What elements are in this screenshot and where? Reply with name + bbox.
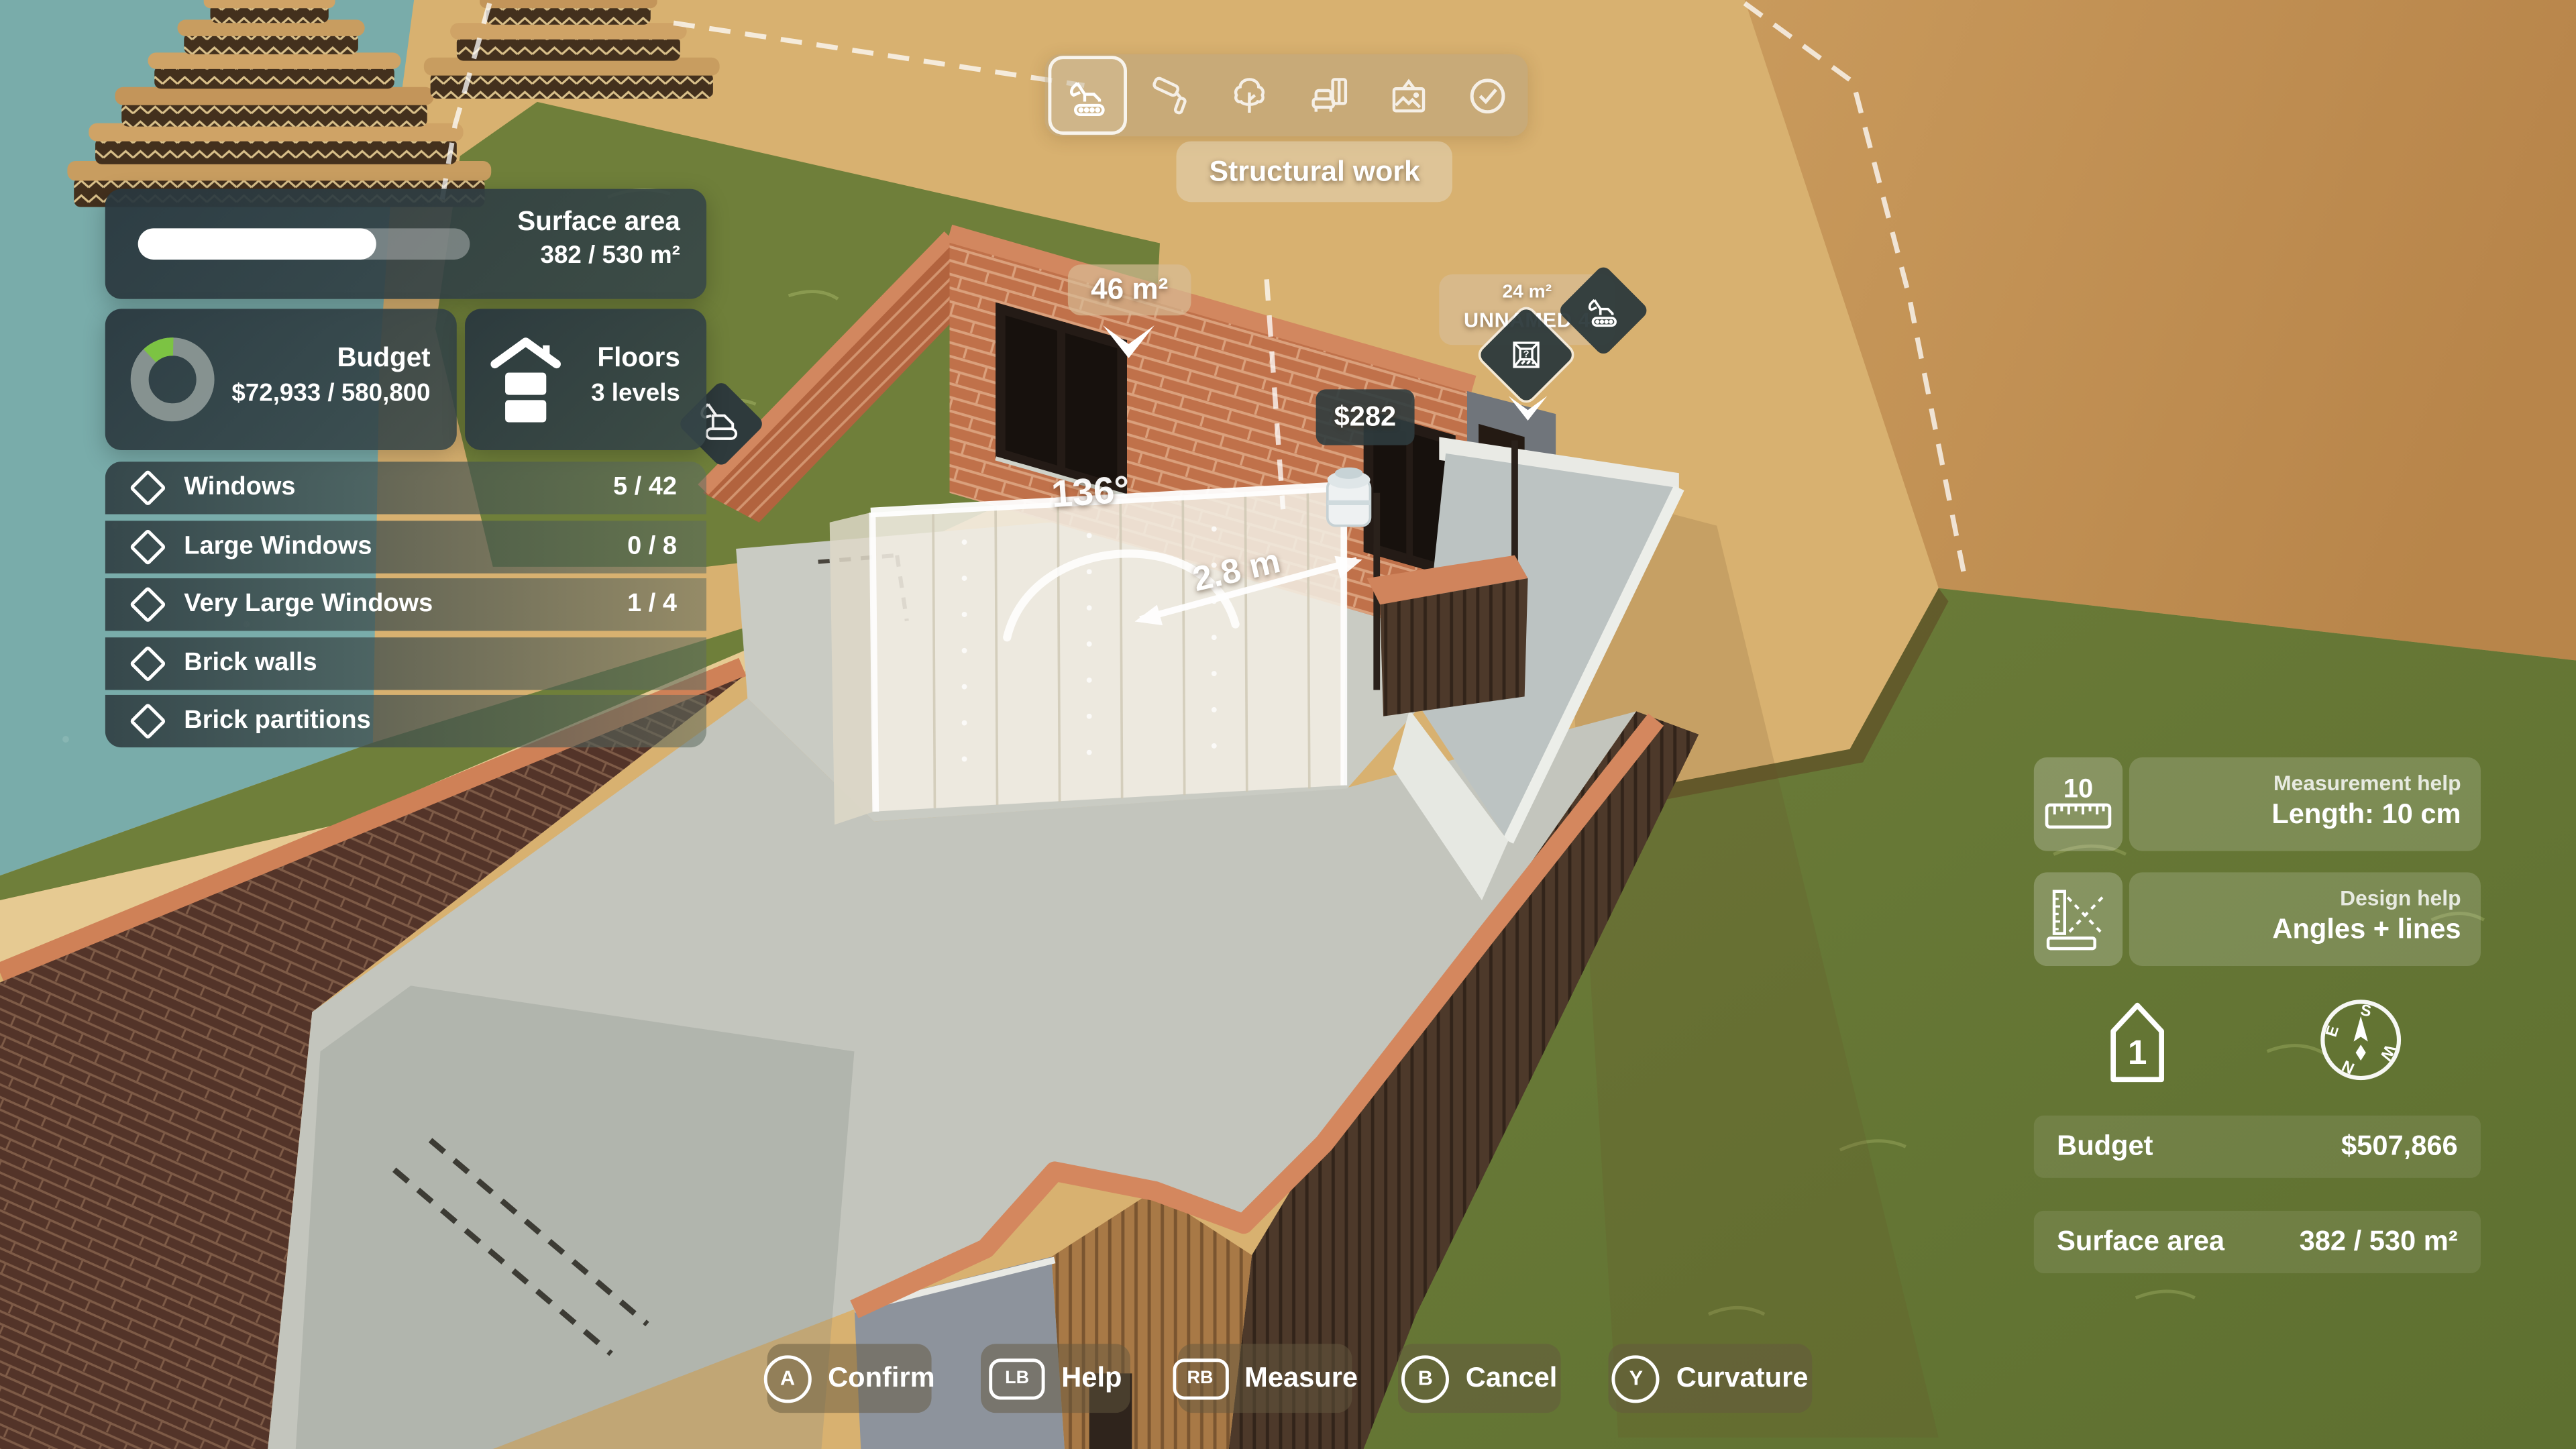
gamepad-rb-icon: RB	[1172, 1358, 1228, 1399]
chevron-down-icon	[1097, 325, 1160, 358]
angle-measurement: 136°	[1050, 467, 1131, 517]
diamond-icon	[129, 702, 166, 739]
requirement-brick-partitions: Brick partitions	[105, 695, 706, 747]
surface-stat-row: Surface area 382 / 530 m²	[2034, 1211, 2481, 1273]
requirement-very-large-windows: Very Large Windows 1 / 4	[105, 578, 706, 631]
floors-panel-value: 3 levels	[591, 380, 680, 408]
gamepad-y-icon: Y	[1612, 1354, 1660, 1402]
tab-landscaping[interactable]	[1214, 59, 1286, 131]
ruler-icon: 10	[2041, 769, 2116, 839]
measurement-help-tile: 10	[2034, 757, 2123, 851]
ruler-badge: 10	[2063, 773, 2093, 802]
gamepad-a-icon: A	[764, 1354, 812, 1402]
requirement-count: 0 / 8	[627, 531, 677, 561]
gamepad-lb-icon: LB	[989, 1358, 1044, 1399]
excavator-icon	[1585, 292, 1621, 329]
check-circle-icon	[1466, 73, 1510, 117]
budget-panel-title: Budget	[337, 343, 430, 375]
tab-furnishing[interactable]	[1293, 59, 1366, 131]
wall-preview[interactable]	[830, 486, 1347, 824]
floors-panel: Floors 3 levels	[465, 309, 706, 450]
measurement-help-panel: Measurement help Length: 10 cm	[2129, 757, 2481, 851]
design-help-panel: Design help Angles + lines	[2129, 872, 2481, 966]
room-area-tag: 46 m²	[1068, 264, 1191, 315]
set-square-icon	[2042, 881, 2114, 957]
surface-area-panel: Surface area 382 / 530 m²	[105, 189, 706, 299]
surface-stat-label: Surface area	[2057, 1226, 2224, 1258]
diamond-icon	[129, 586, 166, 623]
budget-stat-row: Budget $507,866	[2034, 1116, 2481, 1178]
measurement-help-title: Measurement help	[2129, 771, 2461, 796]
surface-panel-value: 382 / 530 m²	[541, 241, 680, 270]
floors-icon	[484, 329, 566, 431]
sofa-icon	[1307, 73, 1352, 117]
diamond-icon	[129, 528, 166, 565]
room-box-icon: ?	[1508, 337, 1544, 373]
active-tool-label: Structural work	[1176, 142, 1452, 203]
tab-structural-work[interactable]	[1049, 56, 1128, 135]
requirement-count: 5 / 42	[613, 473, 677, 502]
requirement-label: Brick partitions	[184, 706, 677, 736]
build-phase-toolbar	[1045, 54, 1528, 136]
budget-panel-value: $72,933 / 580,800	[231, 380, 430, 408]
floor-level-indicator[interactable]: 1	[2103, 996, 2172, 1087]
design-help-value: Angles + lines	[2129, 914, 2461, 947]
curvature-label: Curvature	[1676, 1362, 1809, 1395]
requirement-count: 1 / 4	[627, 590, 677, 619]
budget-stat-value: $507,866	[2341, 1130, 2458, 1163]
confirm-button[interactable]: A Confirm	[767, 1344, 932, 1413]
tree-icon	[1228, 73, 1272, 117]
requirement-label: Large Windows	[184, 531, 627, 561]
wall-drag-handle[interactable]	[1328, 468, 1371, 526]
budget-panel: Budget $72,933 / 580,800	[105, 309, 457, 450]
help-button[interactable]: LB Help	[981, 1344, 1130, 1413]
budget-donut-chart	[125, 332, 220, 427]
requirements-list: Windows 5 / 42 Large Windows 0 / 8 Very …	[105, 462, 706, 747]
surface-stat-value: 382 / 530 m²	[2300, 1226, 2458, 1258]
paint-roller-icon	[1148, 73, 1193, 117]
floor-level-number: 1	[2128, 1032, 2147, 1071]
measurement-help-value: Length: 10 cm	[2129, 798, 2461, 831]
excavator-icon	[1066, 73, 1110, 117]
compass-icon: S W N E	[2313, 992, 2408, 1087]
tab-decoration[interactable]	[1373, 59, 1445, 131]
gamepad-b-icon: B	[1401, 1354, 1449, 1402]
requirement-label: Very Large Windows	[184, 590, 627, 619]
chevron-down-icon	[1507, 396, 1550, 421]
surface-progress-bar	[138, 228, 470, 260]
compass-e: E	[2323, 1024, 2343, 1039]
picture-frame-icon	[1387, 73, 1431, 117]
requirement-brick-walls: Brick walls	[105, 637, 706, 689]
requirement-windows: Windows 5 / 42	[105, 462, 706, 514]
requirement-large-windows: Large Windows 0 / 8	[105, 520, 706, 572]
confirm-label: Confirm	[828, 1362, 935, 1395]
surface-panel-title: Surface area	[517, 207, 680, 239]
cancel-label: Cancel	[1466, 1362, 1558, 1395]
design-help-title: Design help	[2129, 885, 2461, 910]
diamond-icon	[129, 644, 166, 681]
budget-stat-label: Budget	[2057, 1130, 2153, 1163]
measure-label: Measure	[1244, 1362, 1358, 1395]
requirement-label: Brick walls	[184, 648, 677, 678]
cancel-button[interactable]: B Cancel	[1398, 1344, 1560, 1413]
help-label: Help	[1061, 1362, 1122, 1395]
svg-text:?: ?	[1523, 349, 1529, 360]
game-screen: 46 m² 24 m² UNNAMED 4 ? $282 136° 2.8 m	[0, 0, 2576, 1449]
surface-progress-fill	[138, 228, 377, 260]
measure-button[interactable]: RB Measure	[1178, 1344, 1352, 1413]
tab-painting[interactable]	[1134, 59, 1207, 131]
floors-panel-title: Floors	[597, 343, 680, 375]
diamond-icon	[129, 470, 166, 506]
tab-finish[interactable]	[1452, 59, 1524, 131]
curvature-button[interactable]: Y Curvature	[1609, 1344, 1813, 1413]
requirement-label: Windows	[184, 473, 613, 502]
design-help-tile	[2034, 872, 2123, 966]
price-tag: $282	[1316, 389, 1415, 445]
